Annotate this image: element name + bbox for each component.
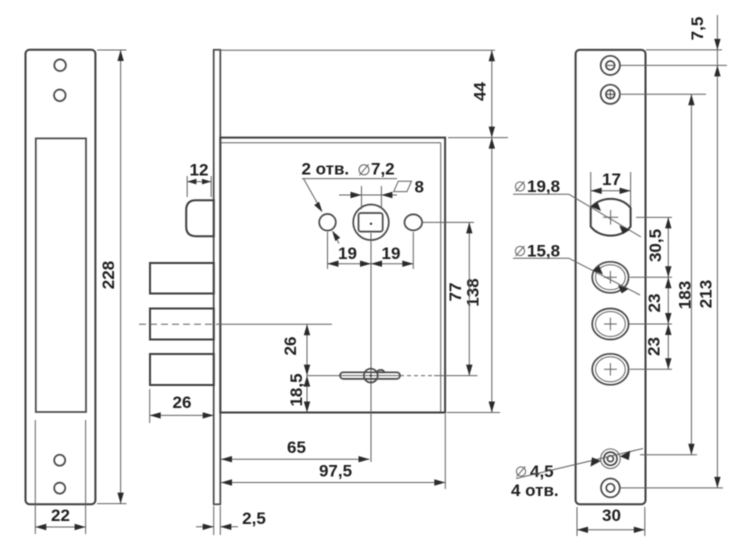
svg-text:30: 30 xyxy=(602,506,621,525)
svg-text:23: 23 xyxy=(645,294,664,313)
svg-text:26: 26 xyxy=(173,393,192,412)
svg-text:2 отв.: 2 отв. xyxy=(302,160,350,179)
svg-text:65: 65 xyxy=(287,438,306,457)
svg-text:26: 26 xyxy=(281,337,300,356)
svg-text:8: 8 xyxy=(415,178,424,197)
svg-text:22: 22 xyxy=(51,506,70,525)
svg-text:97,5: 97,5 xyxy=(319,462,352,481)
svg-text:19: 19 xyxy=(382,244,401,263)
svg-text:4 отв.: 4 отв. xyxy=(511,481,559,500)
svg-text:7,2: 7,2 xyxy=(371,160,395,179)
svg-text:17: 17 xyxy=(602,170,621,189)
svg-text:213: 213 xyxy=(697,280,716,308)
svg-text:23: 23 xyxy=(645,337,664,356)
svg-text:44: 44 xyxy=(471,82,490,101)
svg-text:2,5: 2,5 xyxy=(242,509,266,528)
svg-text:30,5: 30,5 xyxy=(646,229,665,262)
svg-text:15,8: 15,8 xyxy=(527,242,560,261)
svg-text:7,5: 7,5 xyxy=(688,17,707,41)
svg-text:19,8: 19,8 xyxy=(527,177,560,196)
svg-text:4,5: 4,5 xyxy=(530,462,554,481)
svg-text:138: 138 xyxy=(464,278,483,306)
svg-text:228: 228 xyxy=(99,261,118,289)
svg-text:19: 19 xyxy=(338,244,357,263)
svg-text:12: 12 xyxy=(190,161,209,180)
svg-text:183: 183 xyxy=(676,281,695,309)
svg-text:77: 77 xyxy=(446,283,465,302)
svg-text:18,5: 18,5 xyxy=(287,373,306,406)
